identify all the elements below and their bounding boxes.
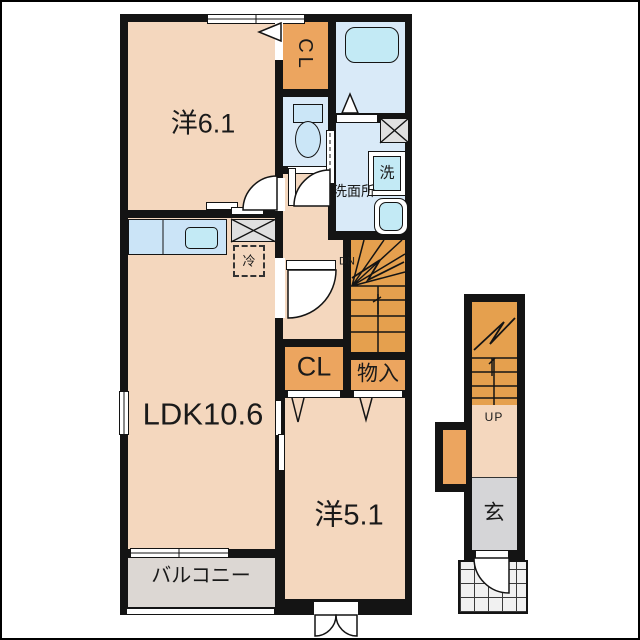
entry-door-sill — [475, 550, 509, 560]
balcony-rail — [126, 608, 275, 615]
hallway-lower — [283, 240, 343, 339]
balcony-window — [130, 548, 229, 558]
floor-plan: 洋6.1 CL 洗面所 洗 冷 DN LDK10.6 CL 物入 洋5.1 バル… — [0, 0, 640, 640]
window-top — [207, 14, 305, 24]
kitchen-sink — [185, 227, 218, 249]
closet2-label: CL — [297, 354, 332, 381]
washroom-label: 洗面所 — [333, 184, 375, 198]
stairs-up-label: UP — [485, 411, 504, 423]
bathtub-icon — [345, 27, 399, 63]
closet2-door-sill — [287, 390, 341, 398]
bedroom2-label: 洋5.1 — [314, 502, 383, 531]
meter-box — [443, 430, 466, 484]
bedroom2-window-leaf-left — [315, 615, 336, 636]
toilet-bowl-icon — [295, 121, 321, 158]
storage-door-sill — [353, 390, 403, 398]
stairs-down-area — [351, 240, 405, 352]
balcony-label: バルコニー — [151, 566, 251, 586]
stairs-down-label: DN — [339, 257, 355, 268]
window-left — [119, 391, 129, 435]
refrigerator-label: 冷 — [242, 255, 255, 268]
storage-label: 物入 — [357, 364, 399, 385]
duct-shaft-kitchen — [231, 219, 276, 242]
closet1-opening — [275, 22, 283, 60]
toilet-door-leaf — [288, 168, 296, 206]
bedroom1-label: 洋6.1 — [171, 111, 236, 138]
ldk-door-leaf — [286, 260, 336, 270]
ldk-door-opening — [275, 258, 285, 318]
bath-door-sill — [336, 114, 378, 123]
duct-shaft-washroom — [380, 118, 409, 143]
bedroom2-sliding-panel-a — [275, 400, 282, 436]
stairs-up-area — [472, 302, 517, 405]
room-bedroom2 — [285, 398, 405, 599]
bedroom2-sliding-panel-b — [278, 434, 285, 471]
entrance-porch — [458, 560, 528, 614]
washbasin-bowl — [379, 202, 403, 231]
ldk-label: LDK10.6 — [143, 399, 264, 430]
washer-label: 洗 — [379, 166, 394, 181]
bedroom2-window-opening — [314, 602, 358, 615]
bedroom2-window-leaf-right — [336, 615, 357, 636]
bedroom1-door-opening — [275, 178, 285, 211]
closet1-label: CL — [295, 38, 315, 72]
bedroom1-sliding-panel-b — [231, 207, 264, 215]
washroom-sliding-door — [326, 130, 335, 184]
entrance-label: 玄 — [484, 503, 505, 524]
